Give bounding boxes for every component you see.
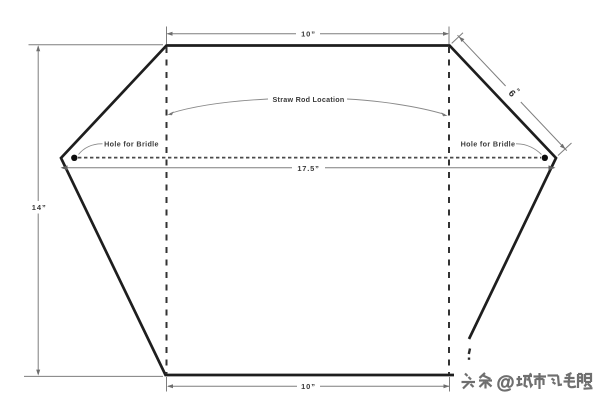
svg-text:Hole for Bridle: Hole for Bridle <box>104 140 159 149</box>
svg-text:Hole for Bridle: Hole for Bridle <box>461 139 516 148</box>
svg-text:17.5”: 17.5” <box>297 164 319 173</box>
svg-text:10”: 10” <box>301 382 316 391</box>
svg-text:14”: 14” <box>32 203 47 212</box>
svg-text:@: @ <box>496 372 514 393</box>
svg-text:Straw Rod Location: Straw Rod Location <box>273 95 345 104</box>
svg-text:10”: 10” <box>301 30 316 39</box>
